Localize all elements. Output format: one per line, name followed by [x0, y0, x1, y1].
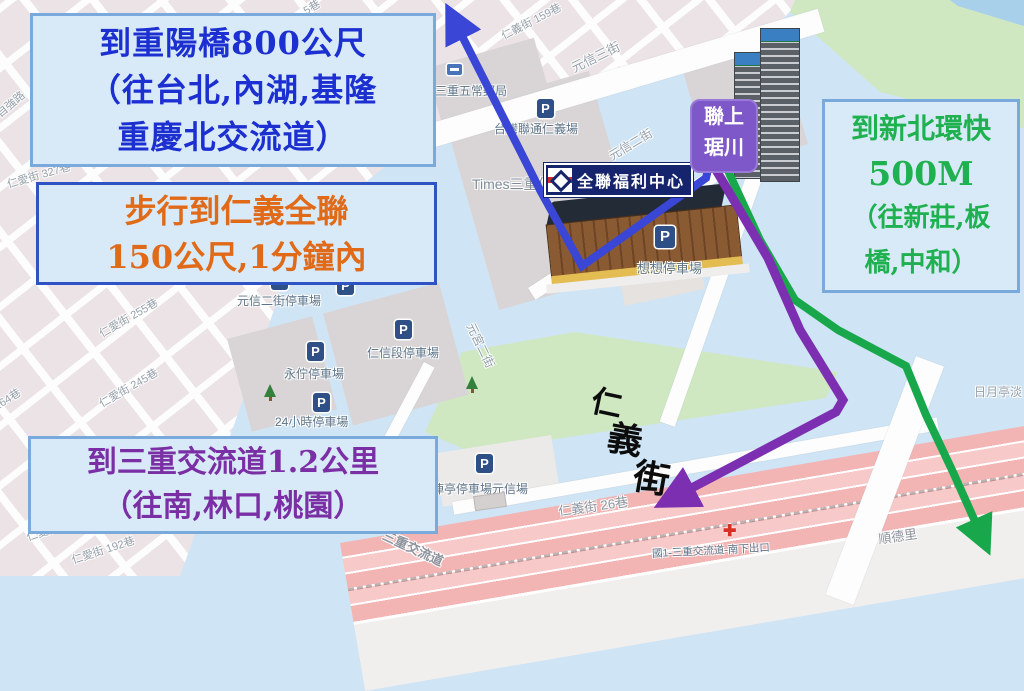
note-line: 到重陽橋800公尺	[33, 20, 433, 67]
note-chongyang-bridge: 到重陽橋800公尺 （往台北,內湖,基隆 重慶北交流道）	[30, 13, 436, 167]
note-line: 橋,中和）	[825, 241, 1017, 286]
pxmart-logo-icon	[548, 168, 572, 192]
note-line: （往南,林口,桃園）	[31, 485, 435, 529]
note-line: 150公尺,1分鐘內	[39, 234, 434, 280]
parking-label: 想想停車場	[637, 258, 702, 277]
note-line: 重慶北交流道）	[33, 114, 433, 161]
parking-icon: P	[655, 226, 675, 248]
note-line: （往新莊,板	[825, 196, 1017, 241]
note-sanchong-interchange: 到三重交流道1.2公里 （往南,林口,桃園）	[28, 436, 438, 534]
note-walk-to-pxmart: 步行到仁義全聯 150公尺,1分鐘內	[36, 182, 437, 285]
pxmart-sign-text: 全聯福利中心	[577, 168, 685, 192]
note-line: 步行到仁義全聯	[39, 188, 434, 234]
lianshang-line2: 琚川	[692, 132, 756, 163]
pxmart-sign: 全聯福利中心	[544, 163, 693, 197]
note-line: 500M	[825, 151, 1017, 196]
route-purple-to-interchange	[684, 170, 843, 492]
lianshang-line1: 聯上	[692, 101, 756, 132]
note-line: （往台北,內湖,基隆	[33, 67, 433, 114]
map-flyer: { "annotations": { "chongyang": {"line1"…	[0, 0, 1024, 576]
lianshang-juchuan-label: 聯上 琚川	[690, 99, 758, 173]
note-line: 到新北環快	[825, 106, 1017, 151]
note-expressway: 到新北環快 500M （往新莊,板 橋,中和）	[822, 99, 1020, 293]
note-line: 到三重交流道1.2公里	[31, 441, 435, 485]
